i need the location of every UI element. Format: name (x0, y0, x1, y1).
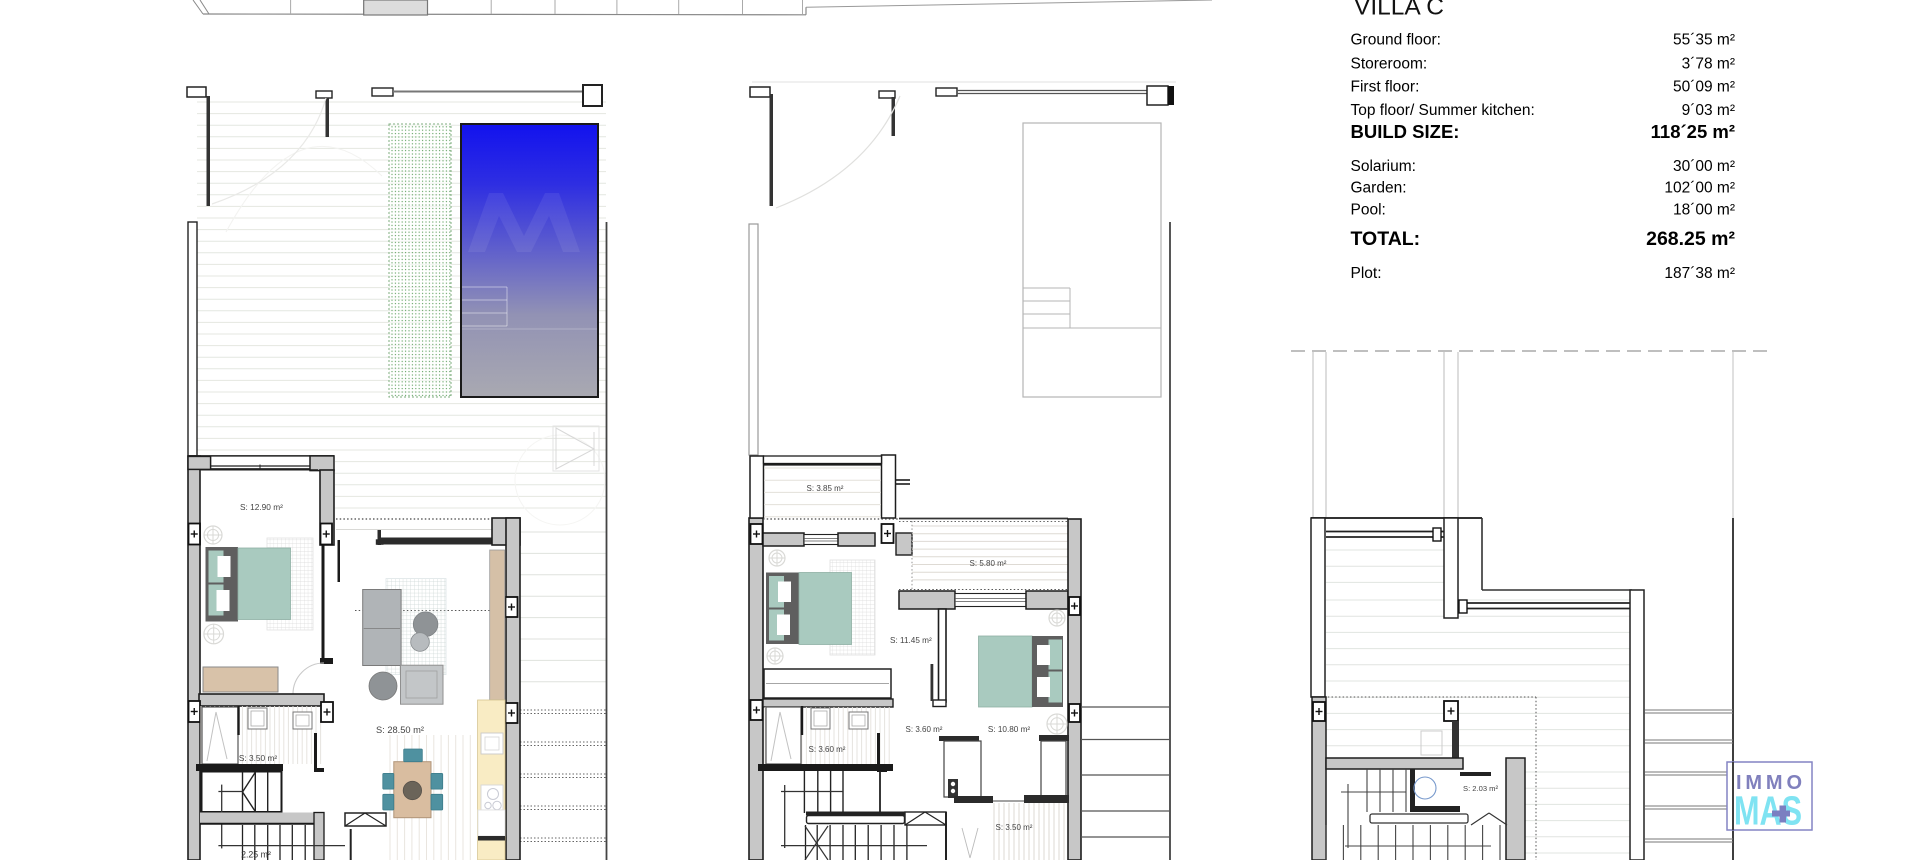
svg-text:Solarium:: Solarium: (1351, 158, 1416, 175)
svg-text:Ground floor:: Ground floor: (1351, 32, 1441, 49)
svg-text:BUILD SIZE:: BUILD SIZE: (1351, 121, 1460, 142)
svg-text:Pool:: Pool: (1351, 202, 1386, 219)
svg-text:3´78 m²: 3´78 m² (1682, 56, 1735, 73)
svg-text:50´09 m²: 50´09 m² (1673, 78, 1735, 95)
svg-text:2.25 m²: 2.25 m² (241, 850, 271, 860)
svg-text:268.25 m²: 268.25 m² (1646, 228, 1735, 250)
svg-text:30´00 m²: 30´00 m² (1673, 158, 1735, 175)
svg-text:102´00 m²: 102´00 m² (1664, 180, 1735, 197)
svg-text:Garden:: Garden: (1351, 180, 1407, 197)
svg-text:S: 3.50 m²: S: 3.50 m² (239, 753, 278, 763)
svg-text:S: 3.60 m²: S: 3.60 m² (906, 725, 943, 734)
svg-text:118´25 m²: 118´25 m² (1651, 121, 1735, 142)
svg-text:187´38 m²: 187´38 m² (1664, 265, 1735, 282)
svg-text:Plot:: Plot: (1351, 265, 1382, 282)
svg-text:S: 11.45 m²: S: 11.45 m² (890, 636, 932, 645)
svg-text:S: 3.50 m²: S: 3.50 m² (996, 823, 1033, 832)
svg-text:S: 2.03 m²: S: 2.03 m² (1463, 784, 1498, 793)
svg-text:TOTAL:: TOTAL: (1351, 228, 1421, 250)
svg-text:MAS: MAS (1734, 788, 1802, 834)
svg-text:S: 5.80 m²: S: 5.80 m² (970, 559, 1007, 568)
svg-text:S: 3.85 m²: S: 3.85 m² (807, 484, 844, 493)
svg-text:VILLA C: VILLA C (1354, 0, 1444, 21)
svg-text:Storeroom:: Storeroom: (1351, 56, 1428, 73)
svg-text:First floor:: First floor: (1351, 78, 1420, 95)
svg-text:S: 12.90 m²: S: 12.90 m² (240, 502, 283, 512)
svg-text:9´03 m²: 9´03 m² (1682, 102, 1735, 119)
svg-text:18´00 m²: 18´00 m² (1673, 202, 1735, 219)
svg-text:S: 10.80 m²: S: 10.80 m² (988, 725, 1031, 734)
svg-text:S: 28.50 m²: S: 28.50 m² (376, 725, 424, 735)
svg-text:S: 3.60 m²: S: 3.60 m² (809, 745, 846, 754)
svg-text:55´35 m²: 55´35 m² (1673, 32, 1735, 49)
svg-text:Top floor/ Summer kitchen:: Top floor/ Summer kitchen: (1351, 102, 1535, 119)
